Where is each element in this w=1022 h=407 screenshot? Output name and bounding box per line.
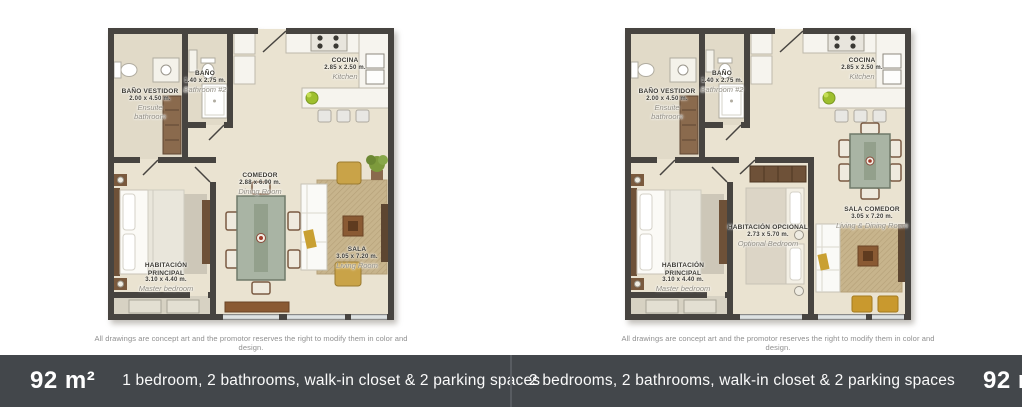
- disclaimer-text-left: All drawings are concept art and the pro…: [81, 334, 421, 352]
- bar-stools: [835, 110, 886, 122]
- unit-a-description: 1 bedroom, 2 bathrooms, walk-in closet &…: [122, 372, 540, 390]
- walk-in-closet: [680, 96, 698, 154]
- footer-unit-a: 92 m² 1 bedroom, 2 bathrooms, walk-in cl…: [0, 355, 510, 407]
- footer-bar: 92 m² 1 bedroom, 2 bathrooms, walk-in cl…: [0, 355, 1022, 407]
- toilet-icon: [631, 62, 654, 78]
- side-table: [795, 287, 804, 296]
- bar-plant-icon: [823, 92, 835, 104]
- bath2-vanity: [189, 50, 197, 72]
- shower-icon: [719, 84, 744, 118]
- vanity-sink-icon: [153, 58, 179, 82]
- walk-in-closet: [163, 96, 181, 154]
- floor-plan-drawing-a: [105, 24, 397, 324]
- floor-plan-1-bedroom: BAÑO VESTIDOR 2.00 x 4.50 m. Ensuite bat…: [105, 24, 397, 324]
- unit-b-description: 2 bedrooms, 2 bathrooms, walk-in closet …: [529, 372, 955, 390]
- bar-plant-icon: [306, 92, 318, 104]
- bar-stools: [318, 110, 369, 122]
- vanity-sink-icon: [670, 58, 696, 82]
- footer-unit-b: 2 bedrooms, 2 bathrooms, walk-in closet …: [512, 355, 1022, 407]
- bath2-vanity: [706, 50, 714, 72]
- area-label-b: 92 m²: [983, 367, 1022, 395]
- armchair: [337, 162, 361, 184]
- disclaimer-text-right: All drawings are concept art and the pro…: [608, 334, 948, 352]
- armchair: [335, 262, 361, 286]
- windows: [740, 315, 904, 320]
- floor-plan-2-bedroom: BAÑO VESTIDOR 2.00 x 4.50 m. Ensuite bat…: [622, 24, 914, 324]
- toilet2-icon: [201, 58, 215, 79]
- side-table: [795, 231, 804, 240]
- page: BAÑO VESTIDOR 2.00 x 4.50 m. Ensuite bat…: [0, 0, 1022, 407]
- area-label-a: 92 m²: [30, 367, 95, 395]
- floor-plan-drawing-b: [622, 24, 914, 324]
- pouf: [852, 296, 872, 312]
- stove-icon: [311, 33, 347, 51]
- stove-icon: [828, 33, 864, 51]
- dresser: [202, 200, 210, 264]
- shower-icon: [202, 84, 227, 118]
- toilet-icon: [114, 62, 137, 78]
- toilet2-icon: [718, 58, 732, 79]
- dresser: [719, 200, 727, 264]
- tv-console: [898, 224, 906, 282]
- windows: [223, 315, 387, 320]
- tv-console: [381, 204, 389, 262]
- pouf: [878, 296, 898, 312]
- sofa: [301, 184, 327, 270]
- sideboard: [225, 302, 289, 312]
